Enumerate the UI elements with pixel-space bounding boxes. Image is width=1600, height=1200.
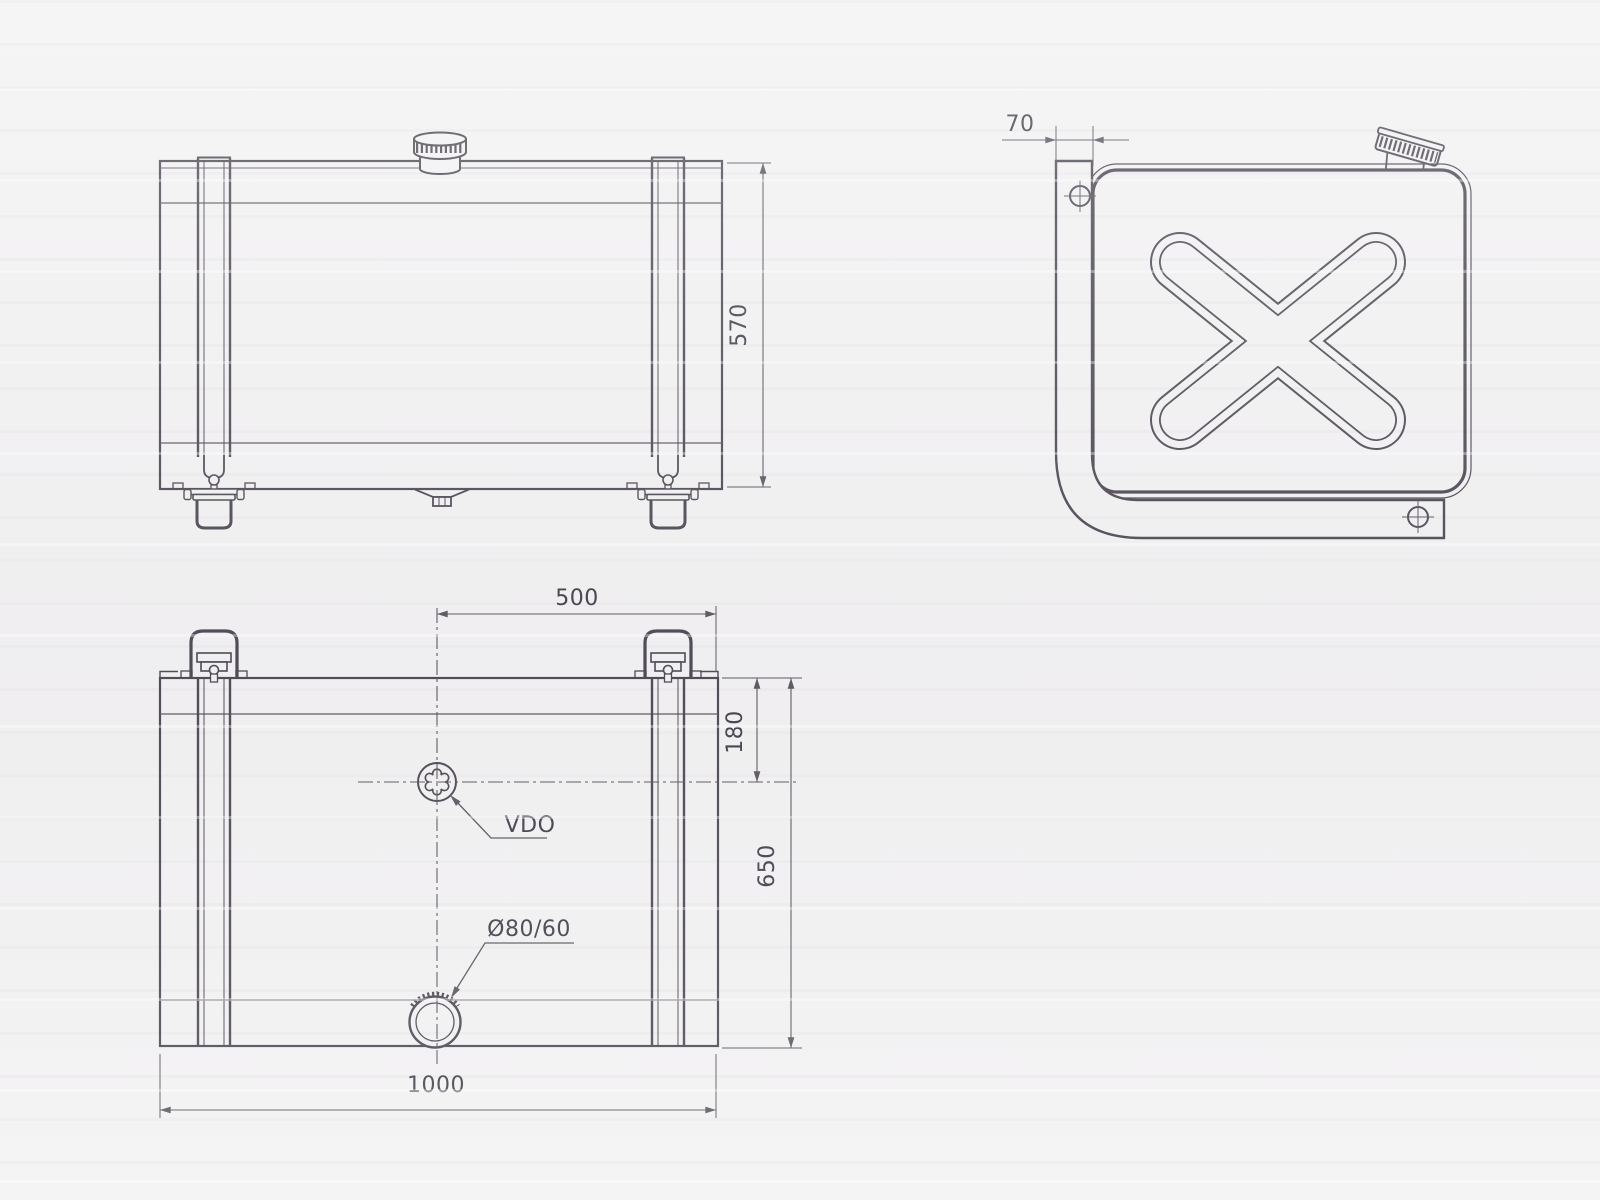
dim-text-70: 70: [1006, 112, 1035, 137]
dimension-180: 180: [722, 678, 802, 782]
top-view: 500 180 650 1000 VDO: [160, 586, 802, 1118]
strap-buckle-left: [181, 631, 247, 682]
buckle-bolt: [664, 666, 673, 675]
dimension-570: 570: [727, 163, 771, 487]
drawing-sheet: 570: [0, 0, 1600, 1200]
clamp-bolt: [663, 475, 673, 485]
dim-text-1000: 1000: [407, 1073, 465, 1098]
drain-plug: [415, 490, 469, 507]
strap-buckle-right: [635, 631, 701, 682]
clamp-hook: [651, 500, 685, 528]
clamp-hook: [197, 500, 231, 528]
dim-text-180: 180: [723, 710, 748, 754]
dim-text-570: 570: [727, 303, 752, 347]
label-text-vdo: VDO: [505, 813, 556, 838]
dim-text-650: 650: [755, 844, 780, 888]
front-view: 570: [160, 133, 771, 529]
tank-outline-top: [160, 678, 718, 1046]
dim-text-500: 500: [555, 586, 599, 611]
buckle-bolt: [210, 666, 219, 675]
side-view: 70: [1002, 112, 1471, 538]
label-text-filler: Ø80/60: [487, 917, 571, 942]
filler-cap-front: [414, 133, 466, 175]
dimension-1000: 1000: [160, 1054, 716, 1118]
clamp-bolt: [209, 475, 219, 485]
tank-outline-front: [160, 161, 722, 489]
technical-drawing-canvas: 570: [0, 0, 1600, 1200]
